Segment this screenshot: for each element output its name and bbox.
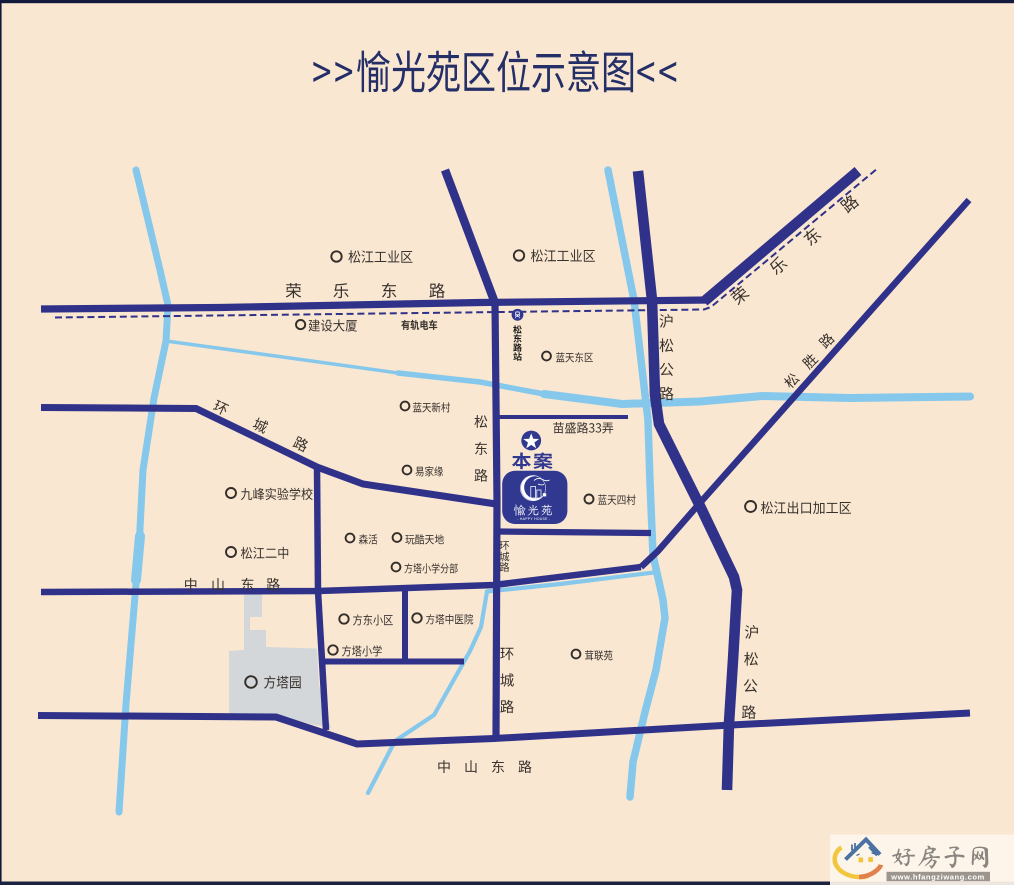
svg-text:- HAPPY HOUSE -: - HAPPY HOUSE - bbox=[517, 517, 550, 521]
svg-text:www.hfangziwang.com: www.hfangziwang.com bbox=[890, 872, 985, 881]
